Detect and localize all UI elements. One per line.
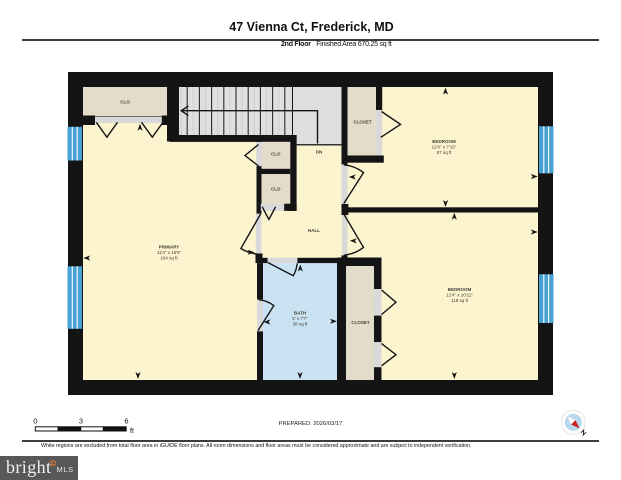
- svg-text:CLOSET: CLOSET: [353, 120, 372, 125]
- svg-text:DN: DN: [316, 150, 323, 155]
- svg-text:PRIMARY: PRIMARY: [159, 245, 180, 250]
- svg-text:11'4" x 16'9": 11'4" x 16'9": [157, 250, 182, 255]
- svg-text:12'6" x 7'10": 12'6" x 7'10": [432, 145, 457, 150]
- svg-text:CLO: CLO: [271, 187, 281, 192]
- svg-text:ft: ft: [130, 428, 134, 435]
- svg-text:HALL: HALL: [308, 228, 320, 233]
- svg-text:BEDROOM: BEDROOM: [432, 139, 456, 144]
- svg-text:5' x 7'7": 5' x 7'7": [292, 316, 308, 321]
- svg-text:CLO: CLO: [120, 100, 130, 105]
- svg-text:87 sq ft: 87 sq ft: [437, 150, 453, 155]
- svg-text:12'4" x 10'11": 12'4" x 10'11": [446, 293, 473, 298]
- svg-text:164 sq ft: 164 sq ft: [160, 256, 178, 261]
- svg-text:38 sq ft: 38 sq ft: [293, 322, 309, 327]
- svg-text:BATH: BATH: [294, 311, 306, 316]
- svg-text:CLOSET: CLOSET: [351, 320, 370, 325]
- svg-text:BEDROOM: BEDROOM: [448, 287, 472, 292]
- svg-text:CLO: CLO: [271, 152, 281, 157]
- svg-text:118 sq ft: 118 sq ft: [451, 298, 469, 303]
